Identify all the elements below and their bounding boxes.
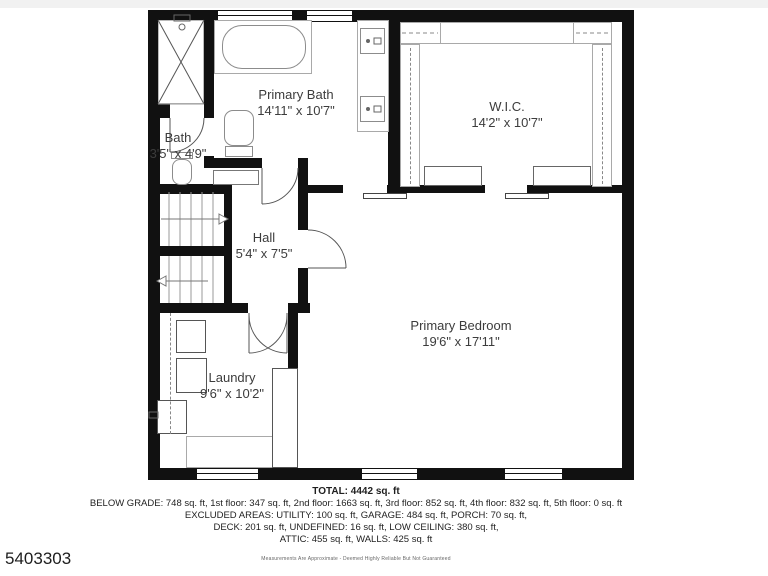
room-label-primary-bedroom: Primary Bedroom 19'6" x 17'11"	[410, 318, 511, 350]
room-dimensions: 14'2" x 10'7"	[471, 115, 542, 131]
room-name: Laundry	[200, 370, 264, 386]
excluded-areas-line: DECK: 201 sq. ft, UNDEFINED: 16 sq. ft, …	[0, 522, 740, 534]
room-name: Primary Bath	[257, 87, 335, 103]
room-dimensions: 19'6" x 17'11"	[410, 334, 511, 350]
window	[197, 468, 258, 480]
stairs	[169, 256, 213, 303]
dresser	[533, 166, 591, 186]
room-name: Bath	[150, 130, 207, 146]
toilet-tank	[225, 146, 253, 157]
mls-number: 5403303	[5, 549, 71, 569]
shower-stall	[158, 20, 204, 104]
room-label-wic: W.I.C. 14'2" x 10'7"	[471, 99, 542, 131]
room-label-hall: Hall 5'4" x 7'5"	[236, 230, 293, 262]
room-name: Primary Bedroom	[410, 318, 511, 334]
window	[307, 10, 352, 22]
floor-areas-line: BELOW GRADE: 748 sq. ft, 1st floor: 347 …	[0, 498, 740, 510]
room-dimensions: 9'6" x 10'2"	[200, 386, 264, 402]
wall	[622, 10, 634, 480]
wall	[288, 313, 298, 370]
washer	[176, 320, 206, 353]
vanity-sink	[360, 96, 385, 122]
utility-sink	[157, 400, 187, 434]
closet-rod	[410, 48, 411, 184]
laundry-counter	[186, 436, 286, 468]
wall	[298, 158, 308, 230]
wall	[204, 158, 262, 168]
room-label-bath: Bath 3'5" x 4'9"	[150, 130, 207, 162]
laundry-cabinet	[272, 368, 298, 468]
room-label-primary-bath: Primary Bath 14'11" x 10'7"	[257, 87, 335, 119]
wall	[148, 184, 232, 194]
door-arc	[262, 168, 298, 204]
wall	[148, 104, 170, 118]
toilet	[172, 159, 192, 185]
stair-direction-arrow	[161, 214, 228, 224]
wall	[148, 303, 248, 313]
wall	[308, 185, 343, 193]
stair-direction-arrow	[157, 276, 208, 286]
bathtub	[222, 25, 306, 69]
dresser	[424, 166, 482, 186]
excluded-areas-line: ATTIC: 455 sq. ft, WALLS: 425 sq. ft	[0, 534, 740, 546]
window	[505, 468, 562, 480]
room-dimensions: 5'4" x 7'5"	[236, 246, 293, 262]
room-name: W.I.C.	[471, 99, 542, 115]
closet-rod	[602, 48, 603, 184]
window	[362, 468, 417, 480]
room-name: Hall	[236, 230, 293, 246]
wall	[288, 303, 310, 313]
room-label-laundry: Laundry 9'6" x 10'2"	[200, 370, 264, 402]
closet-shelf	[440, 22, 574, 44]
sliding-door	[363, 193, 407, 199]
stairs	[169, 192, 213, 246]
room-dimensions: 3'5" x 4'9"	[150, 146, 207, 162]
room-dimensions: 14'11" x 10'7"	[257, 103, 335, 119]
disclaimer: Measurements Are Approximate - Deemed Hi…	[0, 553, 740, 565]
ceiling-break-line	[170, 313, 171, 434]
total-area: TOTAL: 4442 sq. ft	[0, 486, 740, 498]
wall	[204, 20, 214, 118]
wall	[224, 192, 232, 313]
wall	[388, 10, 400, 193]
wall	[148, 246, 232, 256]
sliding-door	[505, 193, 549, 199]
door-arc	[308, 230, 346, 268]
area-summary: TOTAL: 4442 sq. ft BELOW GRADE: 748 sq. …	[0, 486, 740, 565]
hall-cabinet	[213, 170, 259, 185]
toilet	[224, 110, 254, 146]
vanity-sink	[360, 28, 385, 54]
double-door-arc	[249, 313, 287, 353]
excluded-areas-line: EXCLUDED AREAS: UTILITY: 100 sq. ft, GAR…	[0, 510, 740, 522]
